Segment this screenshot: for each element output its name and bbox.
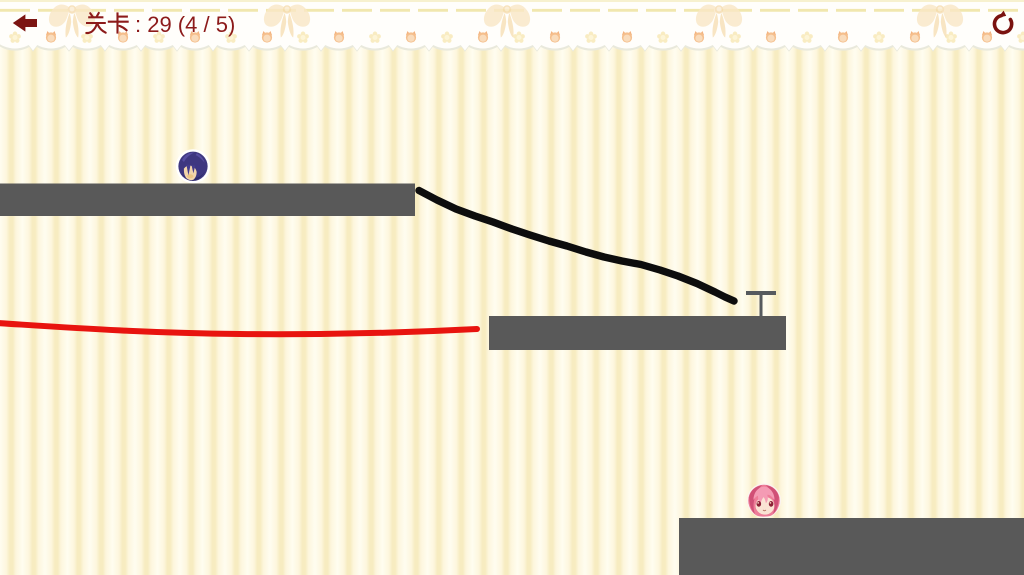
- svg-text:: 29 (4 / 5): : 29 (4 / 5): [135, 12, 235, 37]
